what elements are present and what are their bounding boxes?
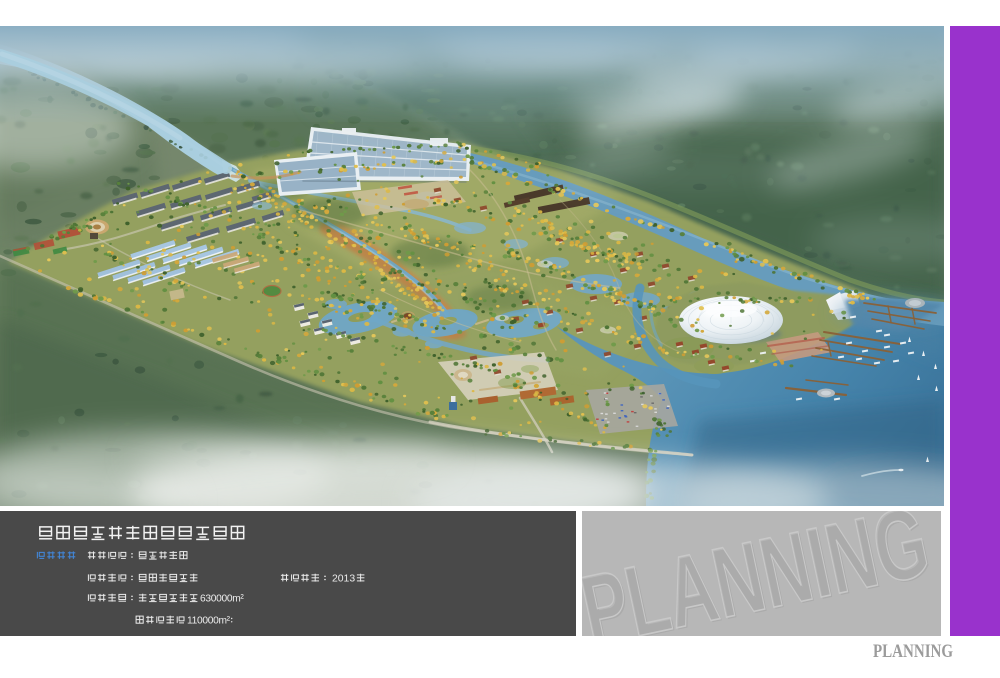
svg-text:110000m²: 110000m² [187, 615, 231, 626]
svg-text:2013: 2013 [332, 573, 355, 584]
svg-text:630000m²: 630000m² [200, 593, 244, 604]
